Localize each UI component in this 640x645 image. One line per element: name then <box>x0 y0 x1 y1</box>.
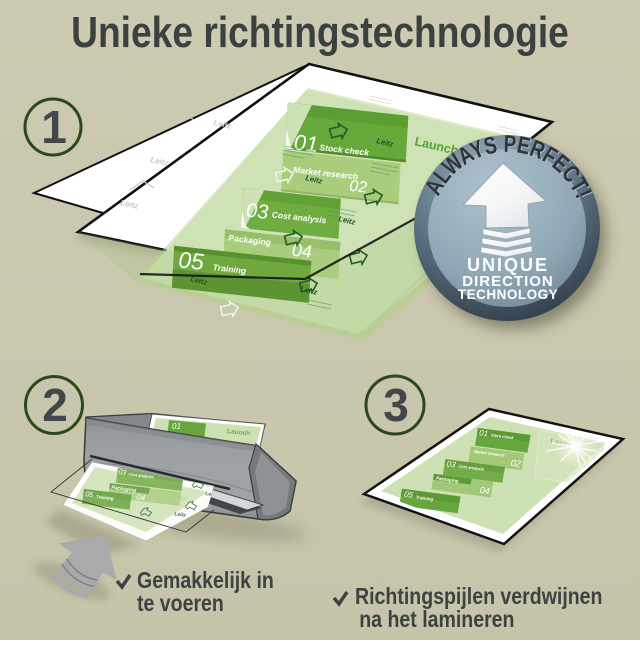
svg-text:01: 01 <box>172 422 181 431</box>
svg-text:02: 02 <box>510 458 522 469</box>
svg-text:02: 02 <box>349 178 368 197</box>
svg-text:TECHNOLOGY: TECHNOLOGY <box>458 287 558 302</box>
svg-text:te voeren: te voeren <box>137 591 224 617</box>
svg-text:Unieke richtingstechnologie: Unieke richtingstechnologie <box>71 7 569 57</box>
svg-text:UNIQUE: UNIQUE <box>467 255 549 275</box>
svg-text:05: 05 <box>178 246 205 275</box>
svg-text:04: 04 <box>479 485 491 496</box>
svg-text:1: 1 <box>41 101 67 153</box>
svg-text:01: 01 <box>478 428 488 438</box>
svg-text:03: 03 <box>245 200 268 224</box>
svg-text:na het lamineren: na het lamineren <box>359 607 514 633</box>
svg-text:01: 01 <box>293 129 319 157</box>
svg-text:3: 3 <box>383 379 409 431</box>
svg-text:Richtingspijlen verdwijnen: Richtingspijlen verdwijnen <box>355 584 602 610</box>
svg-text:Gemakkelijk in: Gemakkelijk in <box>137 568 274 594</box>
svg-text:2: 2 <box>42 379 68 431</box>
